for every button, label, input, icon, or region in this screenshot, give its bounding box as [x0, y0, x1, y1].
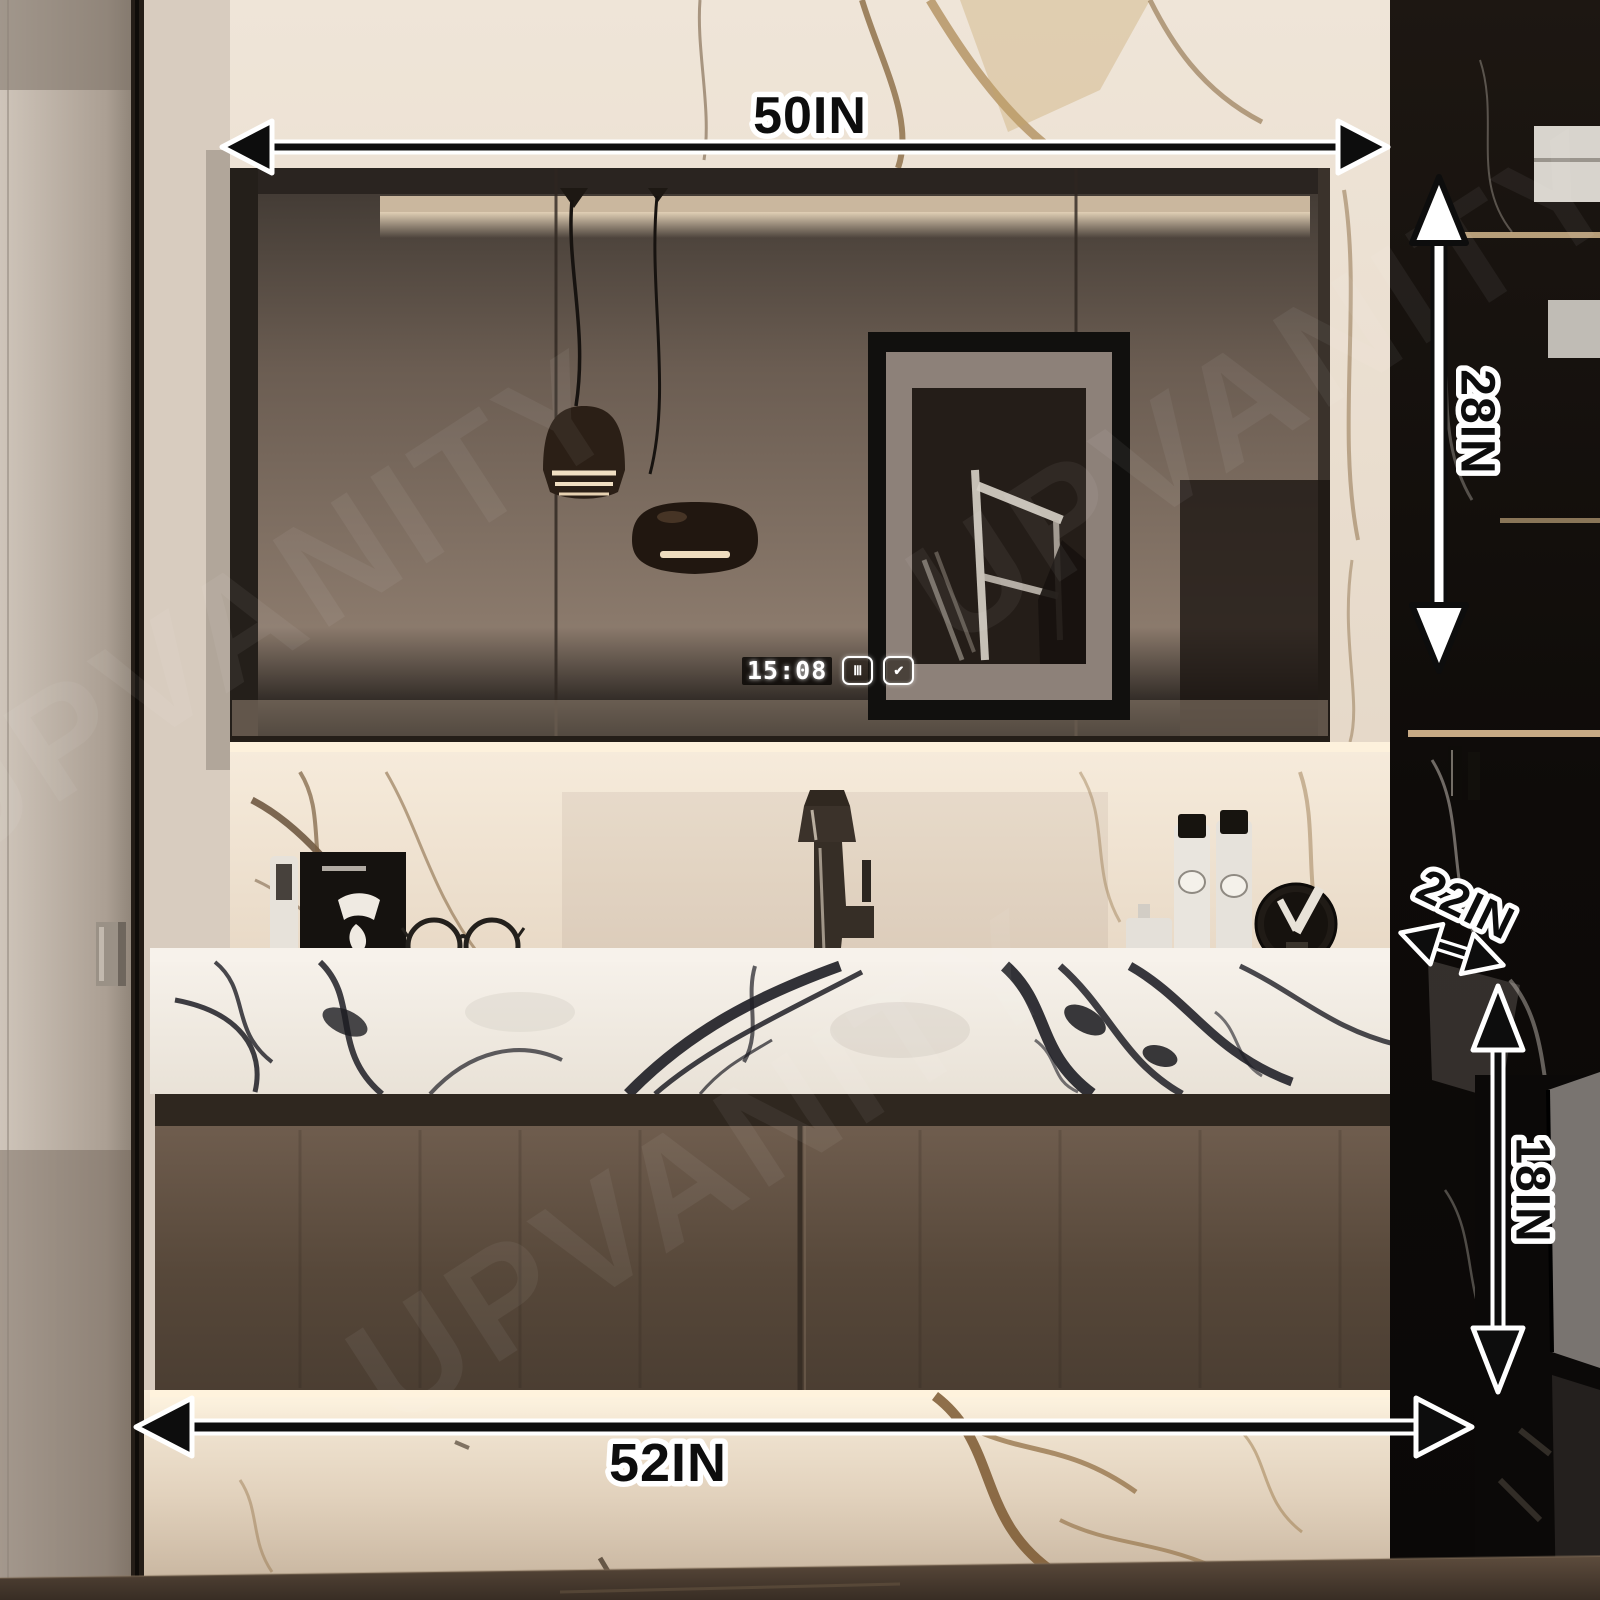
door-handle	[96, 922, 126, 986]
shelf-light-1	[1462, 232, 1600, 238]
vanity-cabinet	[155, 1094, 1467, 1390]
left-door	[0, 0, 144, 1600]
mirror-clock-display: 15:08 Ⅲ ✔	[742, 656, 914, 685]
clock-time: 15:08	[742, 657, 832, 685]
perfume-bottle	[270, 856, 298, 962]
right-cabinet	[1475, 1072, 1600, 1600]
shelf-light-2	[1500, 518, 1600, 523]
drawer-left	[155, 1126, 1467, 1390]
mirror-led-strip	[380, 196, 1310, 212]
defog-icon: Ⅲ	[842, 656, 873, 685]
check-icon: ✔	[883, 656, 914, 685]
shelf-light-3	[1408, 730, 1600, 737]
product-image: UPVANITY UPVANITY UPVANITY 15:08 Ⅲ ✔ 50I…	[0, 0, 1600, 1600]
countertop	[150, 948, 1470, 1094]
bathroom-scene	[0, 0, 1600, 1600]
shelf-box	[1534, 126, 1600, 202]
